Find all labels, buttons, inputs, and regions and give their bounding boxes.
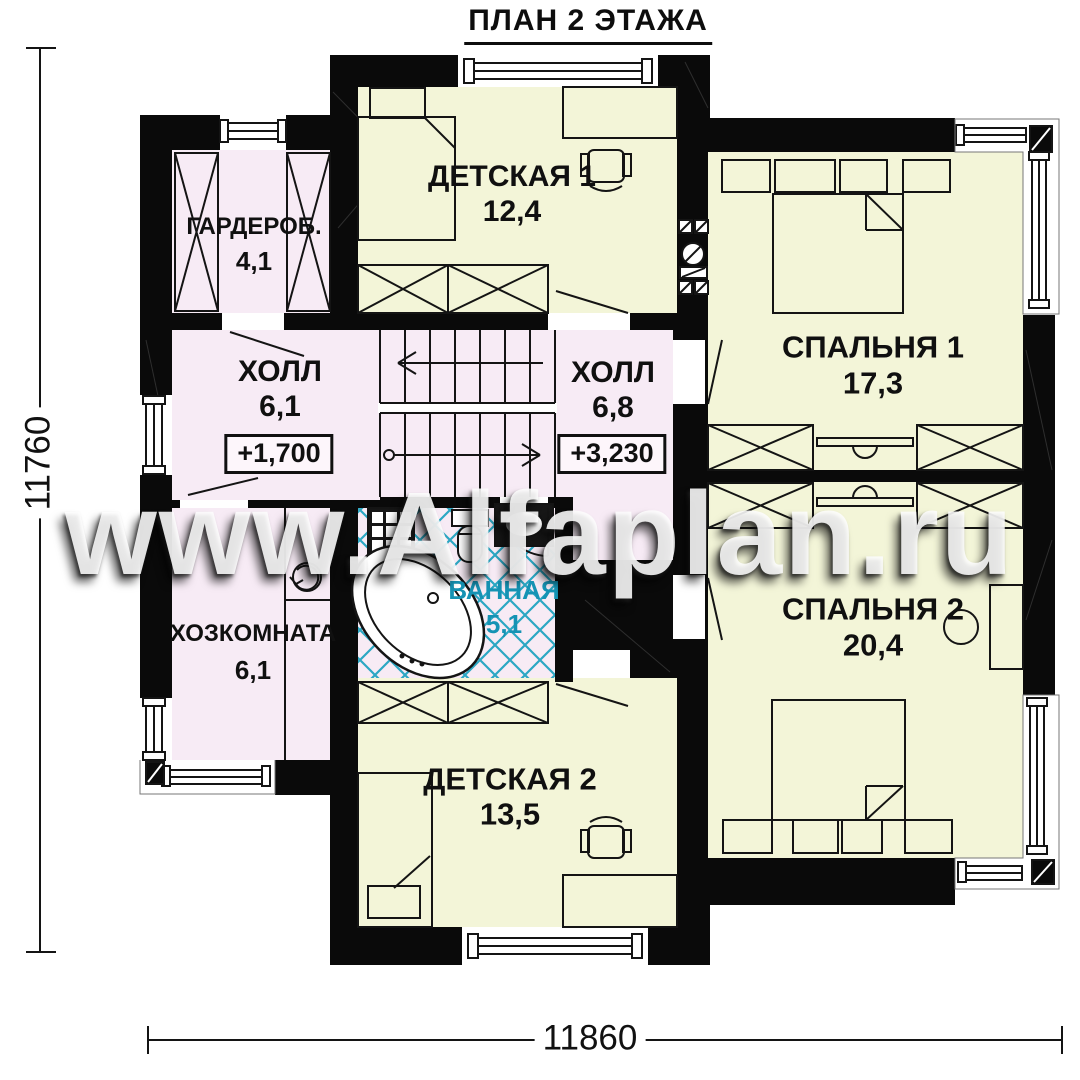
window-hall1-left — [143, 396, 165, 474]
room-area-hall2: 6,8 — [592, 393, 634, 423]
room-label-wardrobe: ГАРДЕРОБ. — [186, 215, 321, 239]
room-area-wardrobe: 4,1 — [236, 248, 272, 274]
page-title: ПЛАН 2 ЭТАЖА — [464, 4, 712, 45]
dimension-width: 11860 — [535, 1021, 646, 1056]
room-label-utility: ХОЗКОМНАТА — [170, 622, 336, 646]
room-label-hall1: ХОЛЛ — [238, 357, 322, 387]
room-area-hall1: 6,1 — [259, 392, 301, 422]
window-kids2-bottom — [468, 934, 642, 958]
window-kids1-top — [464, 59, 652, 83]
room-label-bedroom1: СПАЛЬНЯ 1 — [782, 332, 964, 363]
room-area-bedroom1: 17,3 — [843, 368, 903, 399]
floor-plan-page: ПЛАН 2 ЭТАЖА ГАРДЕРОБ. 4,1 ДЕТСКАЯ 1 12,… — [0, 0, 1080, 1080]
room-area-bathroom: 5,1 — [486, 611, 522, 637]
window-wardrobe-top — [220, 120, 286, 142]
room-area-kids1: 12,4 — [483, 197, 541, 227]
room-label-kids1: ДЕТСКАЯ 1 — [428, 162, 596, 192]
room-area-utility: 6,1 — [235, 657, 271, 683]
room-area-kids2: 13,5 — [480, 799, 540, 830]
window-utility-left — [143, 698, 165, 760]
watermark: www.Alfaplan.ru — [65, 466, 1015, 602]
dimension-height: 11760 — [21, 408, 56, 519]
room-area-bedroom2: 20,4 — [843, 630, 903, 661]
room-label-kids2: ДЕТСКАЯ 2 — [423, 764, 597, 795]
room-label-hall2: ХОЛЛ — [571, 358, 655, 388]
